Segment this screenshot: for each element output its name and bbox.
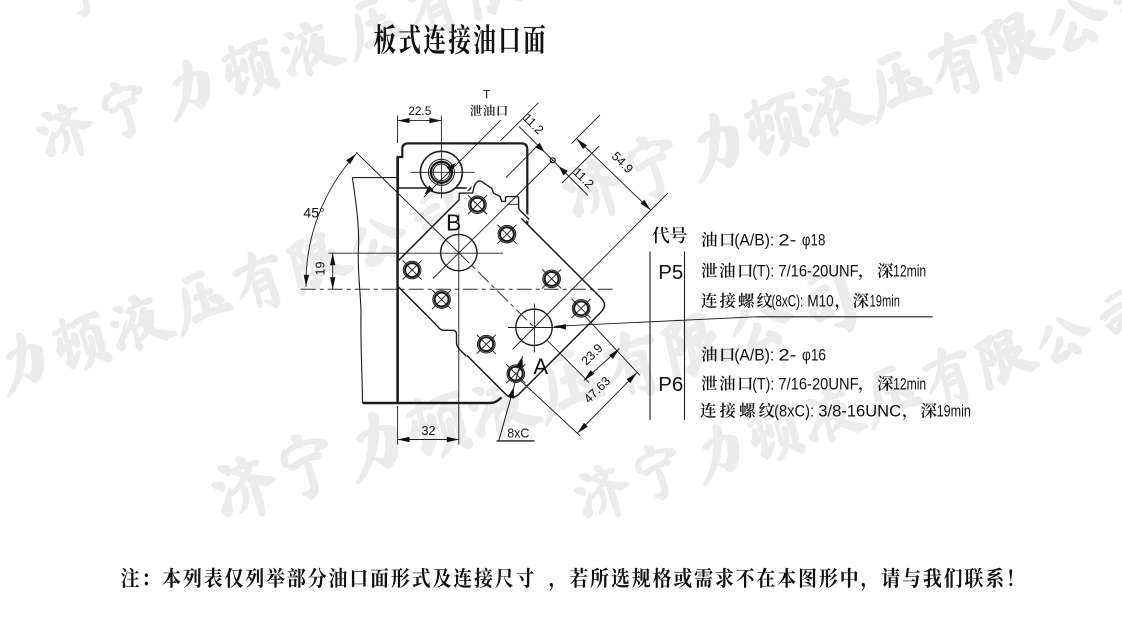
svg-text:(8xC):: (8xC): — [772, 293, 804, 311]
svg-text:2-: 2- — [778, 346, 796, 364]
svg-text:A: A — [533, 354, 548, 379]
svg-text:T: T — [483, 90, 490, 102]
svg-text:M10: M10 — [807, 293, 833, 311]
svg-text:(A/B):: (A/B): — [734, 232, 774, 250]
svg-text:32: 32 — [422, 424, 436, 438]
svg-text:φ16: φ16 — [802, 346, 826, 364]
svg-text:12min: 12min — [893, 263, 926, 281]
svg-text:45°: 45° — [303, 205, 324, 221]
svg-text:3/8-16UNC: 3/8-16UNC — [818, 403, 901, 421]
svg-text:φ18: φ18 — [802, 232, 826, 250]
svg-text:P5: P5 — [658, 261, 683, 284]
svg-text:22.5: 22.5 — [408, 104, 431, 118]
svg-text:7/16-20UNF: 7/16-20UNF — [778, 375, 858, 393]
svg-text:19: 19 — [314, 262, 328, 276]
svg-text:(T):: (T): — [752, 375, 774, 393]
svg-text:7/16-20UNF: 7/16-20UNF — [778, 263, 858, 281]
svg-text:B: B — [446, 209, 461, 235]
svg-text:8xC: 8xC — [507, 427, 529, 441]
svg-text:P6: P6 — [658, 373, 683, 396]
svg-text:(T):: (T): — [752, 263, 774, 281]
svg-text:19min: 19min — [870, 293, 900, 311]
svg-text:19min: 19min — [937, 403, 971, 421]
svg-text:12min: 12min — [893, 375, 926, 393]
svg-text:(8xC):: (8xC): — [774, 403, 814, 421]
svg-text:(A/B):: (A/B): — [734, 346, 774, 364]
svg-text:2-: 2- — [778, 232, 796, 250]
